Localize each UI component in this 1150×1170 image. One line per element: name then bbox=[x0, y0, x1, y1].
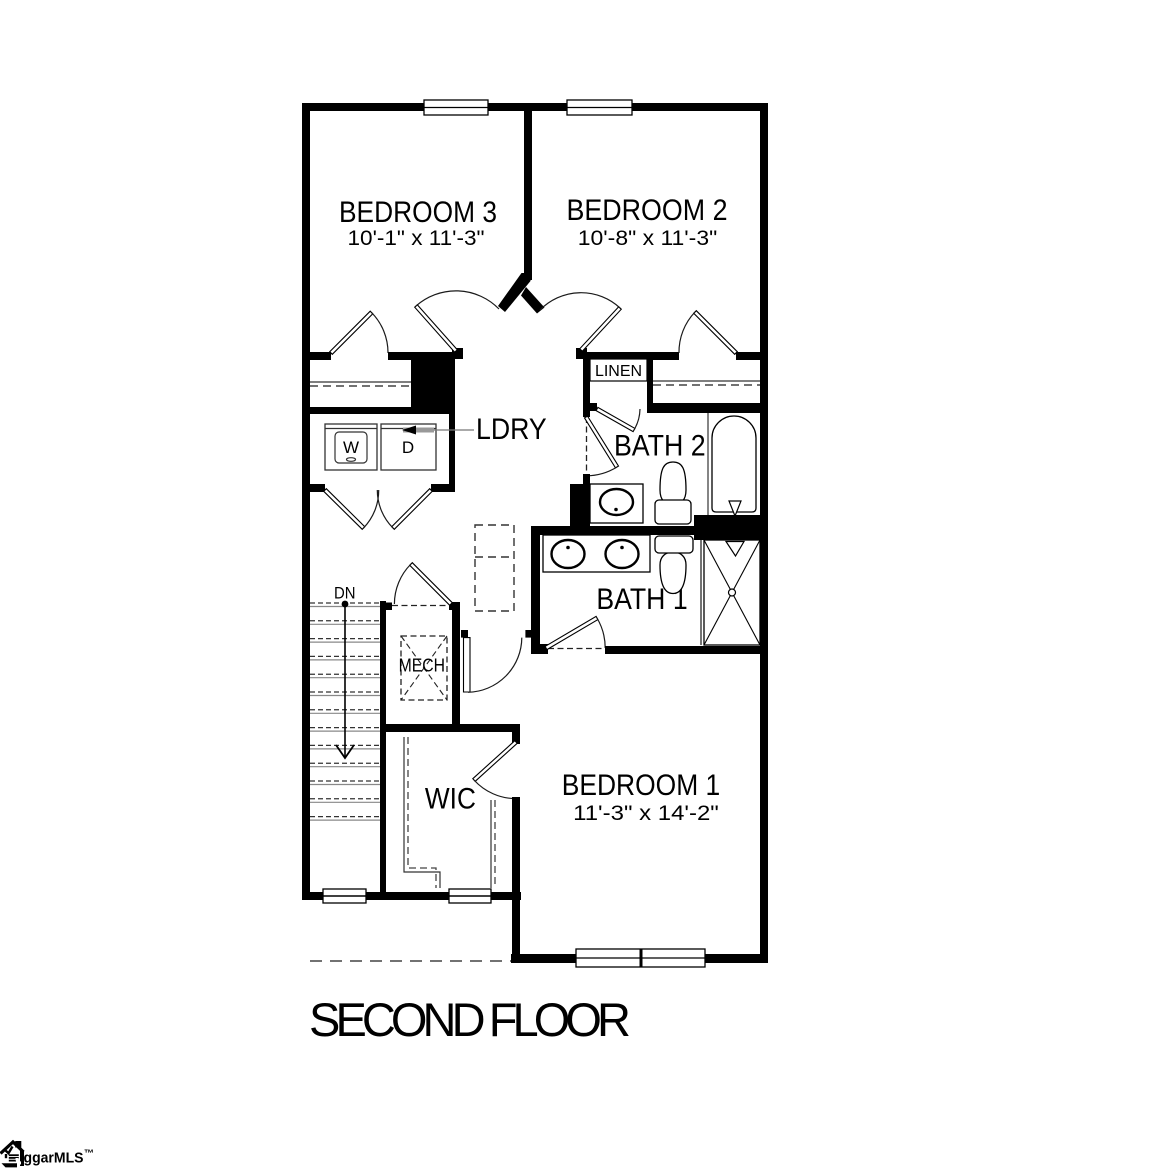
svg-text:LDRY: LDRY bbox=[476, 413, 547, 446]
svg-text:W: W bbox=[343, 438, 359, 457]
svg-text:10'-1" x 11'-3": 10'-1" x 11'-3" bbox=[348, 227, 485, 250]
svg-text:BEDROOM 3: BEDROOM 3 bbox=[339, 196, 497, 229]
svg-text:MECH: MECH bbox=[399, 656, 445, 676]
svg-text:SECOND FLOOR: SECOND FLOOR bbox=[309, 993, 631, 1046]
svg-text:D: D bbox=[402, 438, 414, 457]
svg-text:11'-3" x 14'-2": 11'-3" x 14'-2" bbox=[573, 802, 719, 825]
svg-text:LINEN: LINEN bbox=[595, 363, 642, 380]
svg-text:™: ™ bbox=[84, 1149, 94, 1160]
svg-text:BEDROOM 1: BEDROOM 1 bbox=[562, 769, 721, 802]
svg-text:10'-8" x 11'-3": 10'-8" x 11'-3" bbox=[578, 227, 718, 250]
svg-text:WIC: WIC bbox=[425, 783, 476, 816]
svg-text:ggarMLS: ggarMLS bbox=[24, 1150, 84, 1167]
svg-text:DN: DN bbox=[334, 584, 356, 603]
svg-text:BEDROOM 2: BEDROOM 2 bbox=[567, 194, 728, 227]
svg-text:BATH 2: BATH 2 bbox=[614, 430, 706, 463]
